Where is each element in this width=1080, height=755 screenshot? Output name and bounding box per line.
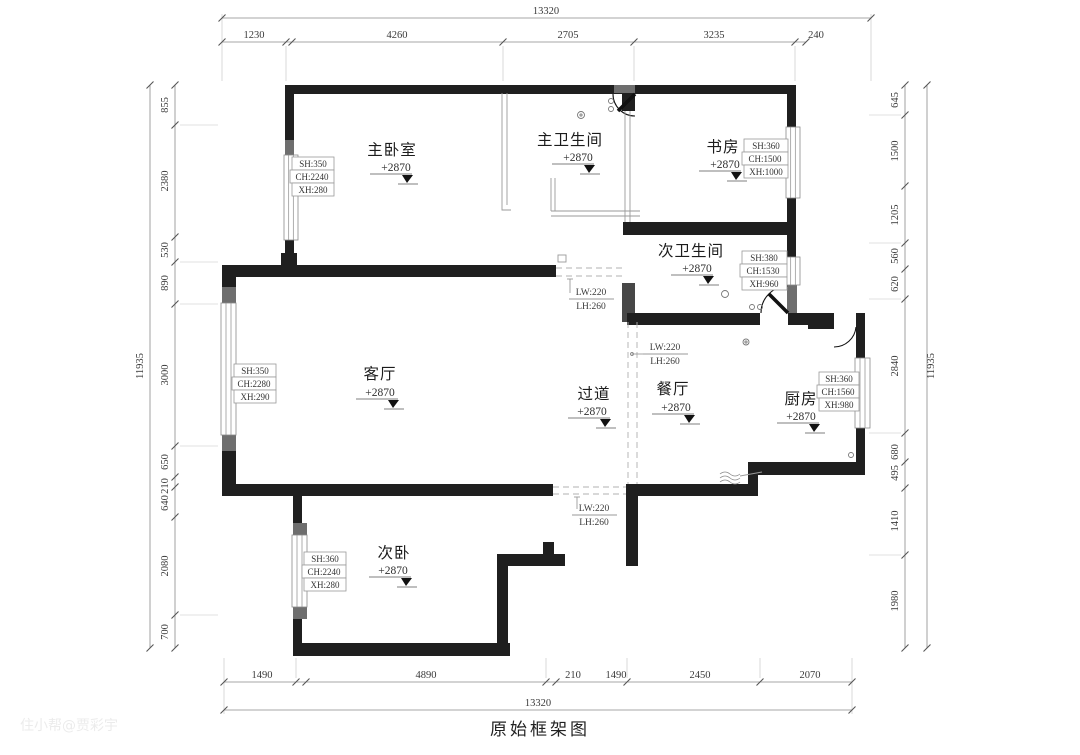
wall-segment: [293, 619, 302, 643]
dim-left-5: 650: [160, 454, 171, 470]
window-box-row: SH:360: [311, 554, 339, 564]
window-symbols: [221, 127, 870, 607]
window-box-second-bedroom: SH:360 CH:2240 XH:280: [302, 552, 346, 591]
dim-left-2: 530: [160, 242, 171, 258]
dim-left-3: 890: [160, 275, 171, 291]
opening-label-bottom: LW:220 LH:260: [572, 497, 617, 528]
opening-lw: LW:220: [576, 288, 607, 298]
room-elevation: +2870: [786, 411, 816, 423]
dim-right-8: 1410: [890, 511, 901, 532]
window-box-row: CH:1500: [748, 154, 782, 164]
dim-left-total: 11935: [135, 353, 146, 379]
wall-segment: [285, 93, 294, 140]
beam-marker: [558, 255, 566, 262]
window-box-living-room: SH:350 CH:2280 XH:290: [232, 364, 276, 403]
window-box-row: SH:380: [750, 253, 778, 263]
window-box-row: XH:980: [825, 400, 854, 410]
outlet-icon: [750, 305, 755, 310]
wall-segment: [293, 643, 510, 656]
dim-top-total: 13320: [533, 6, 559, 17]
room-label-study: 书房: [706, 138, 739, 156]
window-box-row: SH:360: [825, 374, 853, 384]
window-box-row: XH:1000: [749, 167, 783, 177]
wall-segment: [222, 451, 236, 484]
wall-segment: [543, 542, 554, 555]
window-box-row: CH:1530: [746, 266, 780, 276]
window-box-row: XH:280: [311, 580, 340, 590]
opening-lw: LW:220: [650, 343, 681, 353]
light-icon: [580, 114, 582, 116]
light-icon: [578, 112, 585, 119]
window-annotation-boxes: SH:350 CH:2240 XH:280 SH:360 CH:1500 XH:…: [232, 139, 859, 591]
dim-right-5: 2840: [890, 356, 901, 377]
room-elevation: +2870: [365, 387, 395, 399]
dim-right-total: 11935: [926, 353, 937, 379]
dim-top-1: 4260: [387, 30, 408, 41]
wall-segment: [497, 554, 565, 566]
wall-segment: [627, 313, 760, 325]
window-box-row: CH:2240: [307, 567, 341, 577]
dim-bottom-2: 210: [565, 670, 581, 681]
outlet-icon: [609, 107, 614, 112]
wall-segment: [222, 265, 556, 277]
wall-segment: [856, 428, 865, 462]
window-box-row: CH:1560: [821, 387, 855, 397]
room-elevation: +2870: [661, 402, 691, 414]
wall-segment: [222, 277, 236, 287]
wall-junction: [222, 287, 236, 303]
dim-right-2: 1205: [890, 205, 901, 226]
window-box-second-bathroom: SH:380 CH:1530 XH:960: [740, 251, 787, 290]
wall-segment: [222, 484, 553, 496]
dim-left-7: 640: [160, 495, 171, 511]
drawing-title: 原始框架图: [490, 720, 590, 739]
room-label-second-bedroom: 次卧: [377, 544, 410, 562]
dimension-texts: 13320 1230 4260 2705 3235 240 1490 4890 …: [135, 6, 937, 709]
opening-lw: LW:220: [579, 504, 610, 514]
dim-left-1: 2380: [160, 171, 171, 192]
window-box-row: XH:290: [241, 392, 270, 402]
wall-segment: [281, 253, 297, 265]
dim-right-3: 560: [890, 248, 901, 264]
dim-right-1: 1500: [890, 141, 901, 162]
dim-bottom-4: 2450: [690, 670, 711, 681]
wall-segment: [856, 322, 865, 358]
outlet-icon: [609, 99, 614, 104]
dim-right-6: 680: [890, 444, 901, 460]
light-icon: [849, 453, 854, 458]
dim-left-9: 700: [160, 624, 171, 640]
light-icon: [745, 341, 747, 343]
wall-segment: [626, 484, 638, 566]
wall-segment: [293, 496, 302, 523]
room-label-dining-room: 餐厅: [656, 380, 689, 398]
wall-junction: [222, 435, 236, 451]
dim-bottom-1: 4890: [416, 670, 437, 681]
room-elevation: +2870: [378, 565, 408, 577]
dim-bottom-0: 1490: [252, 670, 273, 681]
dim-top-2: 2705: [558, 30, 579, 41]
room-label-hallway: 过道: [577, 385, 610, 403]
dim-top-4: 240: [808, 30, 824, 41]
window-box-row: SH:350: [241, 366, 269, 376]
wall-segment: [623, 222, 796, 235]
room-label-second-bathroom: 次卫生间: [658, 242, 724, 260]
room-label-master-bedroom: 主卧室: [367, 141, 417, 159]
dim-right-4: 620: [890, 276, 901, 292]
window-box-row: CH:2280: [237, 379, 271, 389]
dim-top-3: 3235: [704, 30, 725, 41]
window-box-master-bedroom: SH:350 CH:2240 XH:280: [290, 157, 334, 196]
room-elevation: +2870: [682, 263, 712, 275]
dim-right-9: 1980: [890, 591, 901, 612]
dim-left-6: 210: [160, 478, 171, 494]
wall-segment: [285, 240, 294, 253]
light-icon: [722, 291, 729, 298]
room-elevation: +2870: [710, 159, 740, 171]
room-label-living-room: 客厅: [363, 365, 396, 383]
opening-label-top: LW:220 LH:260: [567, 279, 614, 312]
dim-left-0: 855: [160, 97, 171, 113]
dim-left-8: 2080: [160, 556, 171, 577]
opening-lh: LH:260: [576, 302, 606, 312]
wall-junction: [285, 140, 294, 155]
door-lintel: [614, 85, 635, 93]
wall-junction: [787, 285, 797, 313]
opening-lh: LH:260: [579, 518, 609, 528]
wall-segment: [497, 554, 508, 656]
window-box-kitchen: SH:360 CH:1560 XH:980: [817, 372, 859, 411]
wall-segment: [285, 85, 796, 94]
dim-bottom-3: 1490: [606, 670, 627, 681]
wall-junction: [293, 523, 307, 535]
room-elevation: +2870: [577, 406, 607, 418]
dim-right-0: 645: [890, 92, 901, 108]
dim-bottom-5: 2070: [800, 670, 821, 681]
light-icon: [743, 339, 749, 345]
wall-segment: [626, 484, 758, 496]
door-symbols: [613, 94, 856, 347]
window-box-row: SH:360: [752, 141, 780, 151]
window-box-row: XH:280: [299, 185, 328, 195]
wall-segment: [787, 93, 796, 127]
wall-segment: [748, 462, 865, 475]
door-kitchen: [808, 321, 856, 347]
room-label-kitchen: 厨房: [784, 390, 817, 408]
floor-plan-drawing: 13320 1230 4260 2705 3235 240 1490 4890 …: [0, 0, 1080, 755]
dim-left-4: 3000: [160, 365, 171, 386]
wall-segment: [787, 198, 796, 257]
room-elevation: +2870: [381, 162, 411, 174]
opening-lh: LH:260: [650, 357, 680, 367]
floor-plan-canvas: 13320 1230 4260 2705 3235 240 1490 4890 …: [0, 0, 1080, 755]
dim-bottom-total: 13320: [525, 698, 551, 709]
window-box-row: SH:350: [299, 159, 327, 169]
room-elevation: +2870: [563, 152, 593, 164]
window-box-study: SH:360 CH:1500 XH:1000: [742, 139, 788, 178]
wall-junction: [293, 607, 307, 619]
window-box-row: CH:2240: [295, 172, 329, 182]
window-second-bathroom: [786, 257, 800, 285]
dim-right-7: 495: [890, 465, 901, 481]
opening-label-middle: LW:220 LH:260: [631, 343, 688, 367]
watermark: 住小帮@贾彩宇: [20, 718, 118, 734]
thin-partitions: [502, 93, 640, 262]
dim-top-0: 1230: [244, 30, 265, 41]
room-label-master-bathroom: 主卫生间: [537, 131, 603, 149]
window-box-row: XH:960: [750, 279, 779, 289]
